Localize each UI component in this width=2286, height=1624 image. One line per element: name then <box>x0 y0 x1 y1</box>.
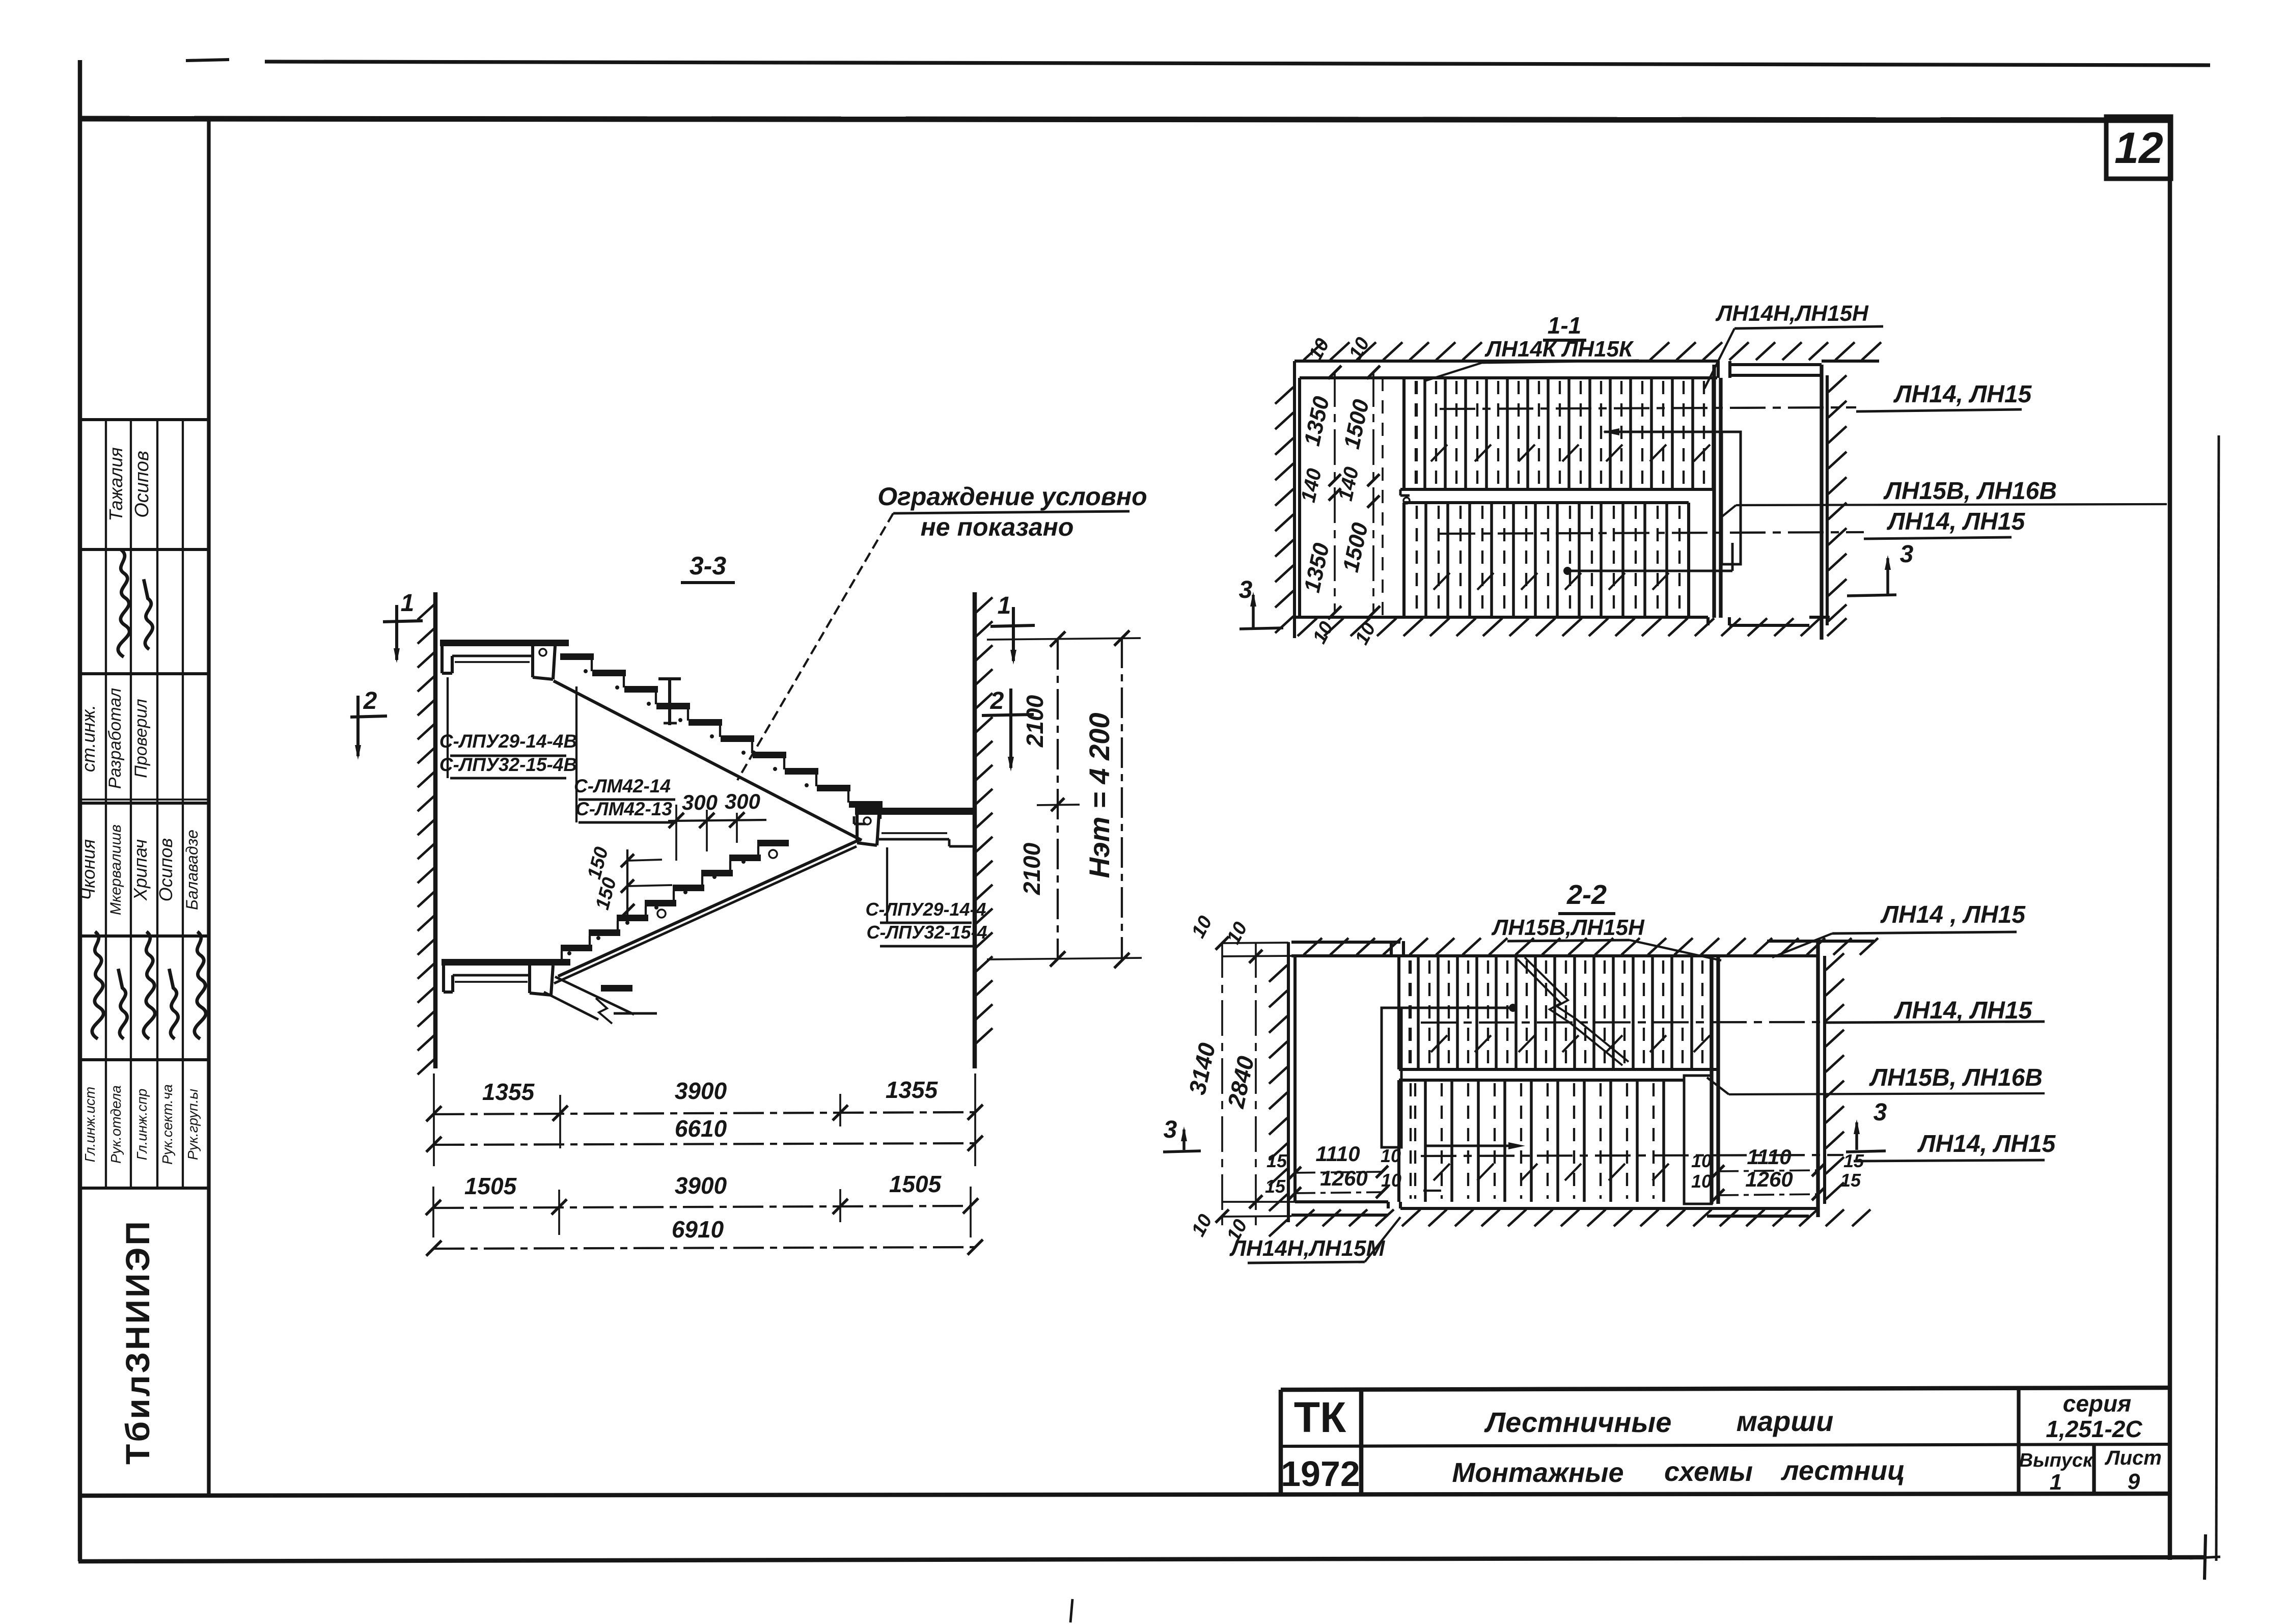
svg-text:3: 3 <box>1239 576 1253 603</box>
svg-text:Нэт = 4 200: Нэт = 4 200 <box>1083 712 1115 878</box>
svg-text:1110: 1110 <box>1315 1142 1360 1166</box>
svg-text:1: 1 <box>2050 1470 2062 1495</box>
svg-text:ЛН15В,ЛН15Н: ЛН15В,ЛН15Н <box>1491 915 1645 940</box>
svg-text:10: 10 <box>1381 1170 1401 1191</box>
svg-text:12: 12 <box>2114 124 2163 173</box>
svg-text:Рук.сект.ча: Рук.сект.ча <box>159 1084 175 1165</box>
svg-text:6610: 6610 <box>675 1115 727 1142</box>
svg-text:Выпуск: Выпуск <box>2019 1450 2094 1471</box>
svg-text:15: 15 <box>1843 1150 1864 1171</box>
svg-text:ЛН14 , ЛН15: ЛН14 , ЛН15 <box>1880 901 2026 928</box>
svg-text:Рук.груп.ы: Рук.груп.ы <box>185 1089 201 1160</box>
svg-text:ЛН14Н,ЛН15Н: ЛН14Н,ЛН15Н <box>1715 301 1869 326</box>
svg-text:1: 1 <box>998 592 1011 619</box>
svg-text:Ограждение условно: Ограждение условно <box>877 482 1147 511</box>
svg-text:3900: 3900 <box>675 1078 727 1104</box>
svg-text:серия: серия <box>2063 1390 2131 1417</box>
svg-text:ЛН15В, ЛН16В: ЛН15В, ЛН16В <box>1869 1064 2043 1091</box>
svg-text:1,251-2С: 1,251-2С <box>2046 1416 2142 1442</box>
svg-text:ТК: ТК <box>1294 1393 1346 1441</box>
svg-text:10: 10 <box>1381 1145 1401 1166</box>
svg-text:Осипов: Осипов <box>131 451 153 518</box>
svg-text:ЛН14, ЛН15: ЛН14, ЛН15 <box>1894 997 2033 1024</box>
svg-text:ст.инж.: ст.инж. <box>78 705 99 772</box>
svg-text:ЛН14Н,ЛН15М: ЛН14Н,ЛН15М <box>1229 1236 1386 1261</box>
svg-text:1355: 1355 <box>886 1077 939 1103</box>
svg-text:1972: 1972 <box>1281 1454 1360 1494</box>
svg-text:2: 2 <box>990 687 1004 714</box>
svg-text:С-ЛПУ29-14-4: С-ЛПУ29-14-4 <box>865 899 986 920</box>
svg-text:15: 15 <box>1265 1176 1286 1197</box>
svg-text:С-ЛПУ32-15-4В: С-ЛПУ32-15-4В <box>439 754 577 775</box>
svg-text:1260: 1260 <box>1745 1167 1793 1191</box>
svg-text:С-ЛМ42-13: С-ЛМ42-13 <box>575 799 672 819</box>
svg-text:ТбилЗНИИЭП: ТбилЗНИИЭП <box>119 1219 156 1465</box>
svg-text:Гл.инж.ист: Гл.инж.ист <box>82 1087 98 1163</box>
svg-text:Монтажные: Монтажные <box>1452 1457 1623 1488</box>
svg-text:ЛН14К ЛН15К: ЛН14К ЛН15К <box>1484 337 1634 362</box>
svg-text:300: 300 <box>682 790 718 814</box>
svg-text:2-2: 2-2 <box>1566 879 1607 910</box>
svg-text:ЛН15В, ЛН16В: ЛН15В, ЛН16В <box>1883 478 2057 505</box>
svg-text:С-ЛПУ32-15-4: С-ЛПУ32-15-4 <box>866 922 987 943</box>
svg-text:Рук.отдела: Рук.отдела <box>108 1085 124 1164</box>
svg-text:1-1: 1-1 <box>1548 312 1581 339</box>
svg-text:Осипов: Осипов <box>155 838 176 902</box>
svg-text:1355: 1355 <box>482 1079 535 1105</box>
svg-text:10: 10 <box>1691 1171 1712 1192</box>
svg-text:3: 3 <box>1164 1116 1177 1143</box>
svg-text:ЛН14, ЛН15: ЛН14, ЛН15 <box>1887 508 2026 535</box>
svg-text:2100: 2100 <box>1018 842 1045 895</box>
svg-text:10: 10 <box>1691 1150 1712 1171</box>
svg-text:Хрипач: Хрипач <box>130 839 151 901</box>
svg-text:15: 15 <box>1266 1150 1287 1171</box>
svg-text:3: 3 <box>1874 1099 1887 1126</box>
svg-text:ЛН14, ЛН15: ЛН14, ЛН15 <box>1893 381 2032 408</box>
svg-text:Лестничные: Лестничные <box>1484 1406 1672 1438</box>
svg-text:лестниц: лестниц <box>1780 1455 1905 1486</box>
svg-text:3: 3 <box>1900 541 1914 568</box>
svg-text:2: 2 <box>363 687 377 714</box>
svg-text:9: 9 <box>2128 1469 2140 1494</box>
svg-text:1: 1 <box>401 590 415 617</box>
svg-text:Проверил: Проверил <box>131 699 151 778</box>
svg-text:Разработал: Разработал <box>105 688 125 789</box>
svg-text:1260: 1260 <box>1320 1166 1367 1190</box>
svg-text:Чкония: Чкония <box>78 839 99 900</box>
svg-text:не показано: не показано <box>921 513 1074 541</box>
svg-text:15: 15 <box>1840 1170 1861 1191</box>
svg-text:схемы: схемы <box>1664 1456 1753 1487</box>
svg-text:Тажалия: Тажалия <box>105 447 126 521</box>
svg-text:ЛН14, ЛН15: ЛН14, ЛН15 <box>1917 1131 2056 1158</box>
svg-text:Гл.инж.спр: Гл.инж.спр <box>134 1089 150 1161</box>
svg-text:Лист: Лист <box>2104 1447 2162 1469</box>
svg-text:Балавадзе: Балавадзе <box>183 830 201 910</box>
svg-text:1505: 1505 <box>889 1171 942 1197</box>
svg-text:3900: 3900 <box>675 1172 727 1199</box>
svg-text:6910: 6910 <box>672 1216 724 1243</box>
svg-text:300: 300 <box>725 789 760 813</box>
svg-text:марши: марши <box>1737 1405 1834 1437</box>
svg-text:С-ЛПУ29-14-4В: С-ЛПУ29-14-4В <box>439 731 577 752</box>
svg-text:1505: 1505 <box>464 1173 517 1199</box>
svg-text:2100: 2100 <box>1022 695 1048 748</box>
svg-text:1110: 1110 <box>1747 1145 1791 1169</box>
svg-text:С-ЛМ42-14: С-ЛМ42-14 <box>574 776 671 796</box>
svg-text:3-3: 3-3 <box>690 552 726 580</box>
svg-text:Мкервалишв: Мкервалишв <box>107 824 124 915</box>
